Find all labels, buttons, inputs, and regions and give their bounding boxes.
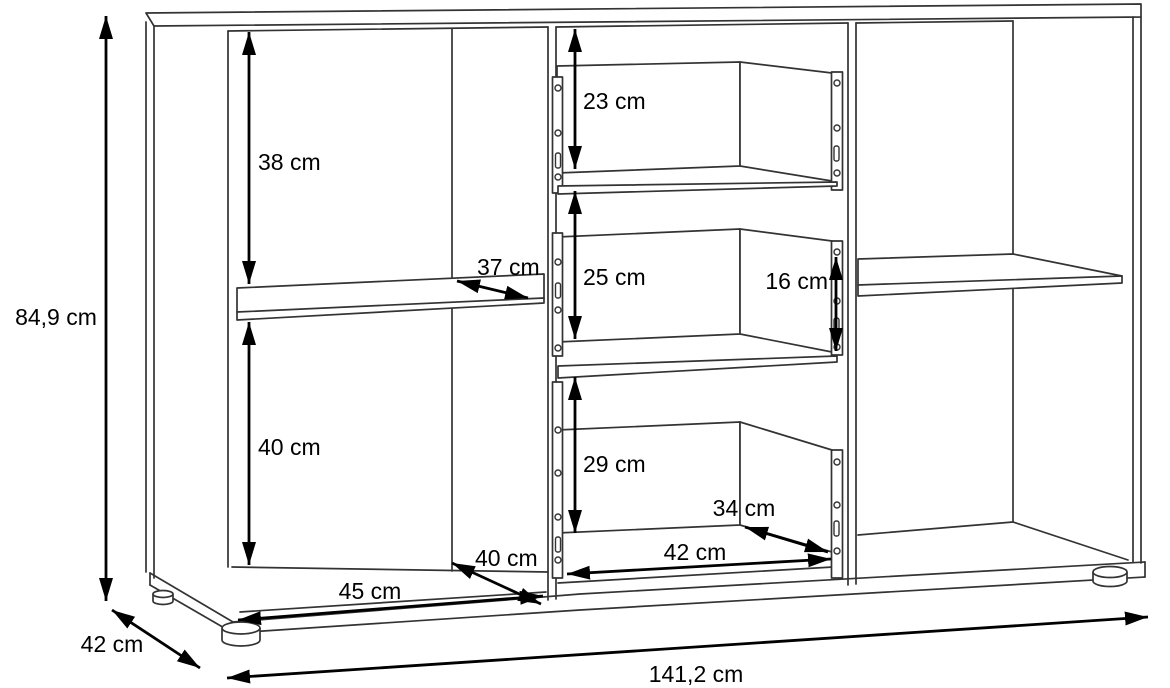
foot-back-left-top bbox=[153, 591, 173, 598]
label-overall-height: 84,9 cm bbox=[15, 304, 97, 330]
label-left-lower-height: 40 cm bbox=[258, 434, 321, 460]
label-overall-depth: 42 cm bbox=[81, 631, 144, 657]
label-drawer-top-height: 23 cm bbox=[583, 88, 646, 114]
drawer-side-panel bbox=[740, 422, 832, 552]
label-drawer-side-height: 16 cm bbox=[765, 268, 828, 294]
label-left-width: 45 cm bbox=[339, 578, 402, 604]
label-middle-depth: 34 cm bbox=[713, 495, 776, 521]
drawer-back-panel bbox=[557, 62, 740, 173]
label-left-shelf-depth: 37 cm bbox=[477, 254, 540, 280]
right-divider-panel bbox=[848, 23, 856, 585]
label-overall-width: 141,2 cm bbox=[649, 661, 744, 687]
label-drawer-bottom-height: 29 cm bbox=[583, 451, 646, 477]
drawer-rail-right bbox=[832, 450, 843, 578]
middle-bay-floor bbox=[558, 567, 833, 583]
drawer-top bbox=[553, 62, 843, 193]
furniture-dimension-diagram: 84,9 cm 42 cm 141,2 cm 38 cm 40 cm 37 cm… bbox=[0, 0, 1170, 688]
right-bay-floor bbox=[858, 522, 1128, 560]
top-panel bbox=[146, 4, 1141, 26]
right-side-panel bbox=[1133, 17, 1141, 563]
foot-right-top bbox=[1093, 567, 1127, 578]
shelf-board-under-top-drawer bbox=[558, 182, 837, 194]
left-side-panel bbox=[146, 22, 228, 578]
label-left-upper-height: 38 cm bbox=[258, 149, 321, 175]
bottom-front-edge bbox=[150, 562, 1145, 622]
plinth-caps bbox=[150, 562, 1145, 585]
drawer-side-panel bbox=[740, 62, 832, 181]
right-shelf bbox=[858, 254, 1122, 296]
label-left-depth: 40 cm bbox=[475, 545, 538, 571]
label-drawer-middle-height: 25 cm bbox=[583, 264, 646, 290]
right-shelf-board bbox=[858, 254, 1122, 296]
foot-front-left-top bbox=[222, 622, 260, 634]
left-shelf-board bbox=[237, 274, 544, 320]
diagram-canvas: 84,9 cm 42 cm 141,2 cm 38 cm 40 cm 37 cm… bbox=[0, 0, 1170, 688]
plinth-bottom-edge bbox=[150, 577, 1145, 633]
dimension-labels: 84,9 cm 42 cm 141,2 cm 38 cm 40 cm 37 cm… bbox=[15, 88, 828, 687]
label-middle-width: 42 cm bbox=[664, 539, 727, 565]
left-shelf bbox=[237, 274, 544, 320]
shelf-board-under-middle-drawer bbox=[558, 356, 837, 378]
